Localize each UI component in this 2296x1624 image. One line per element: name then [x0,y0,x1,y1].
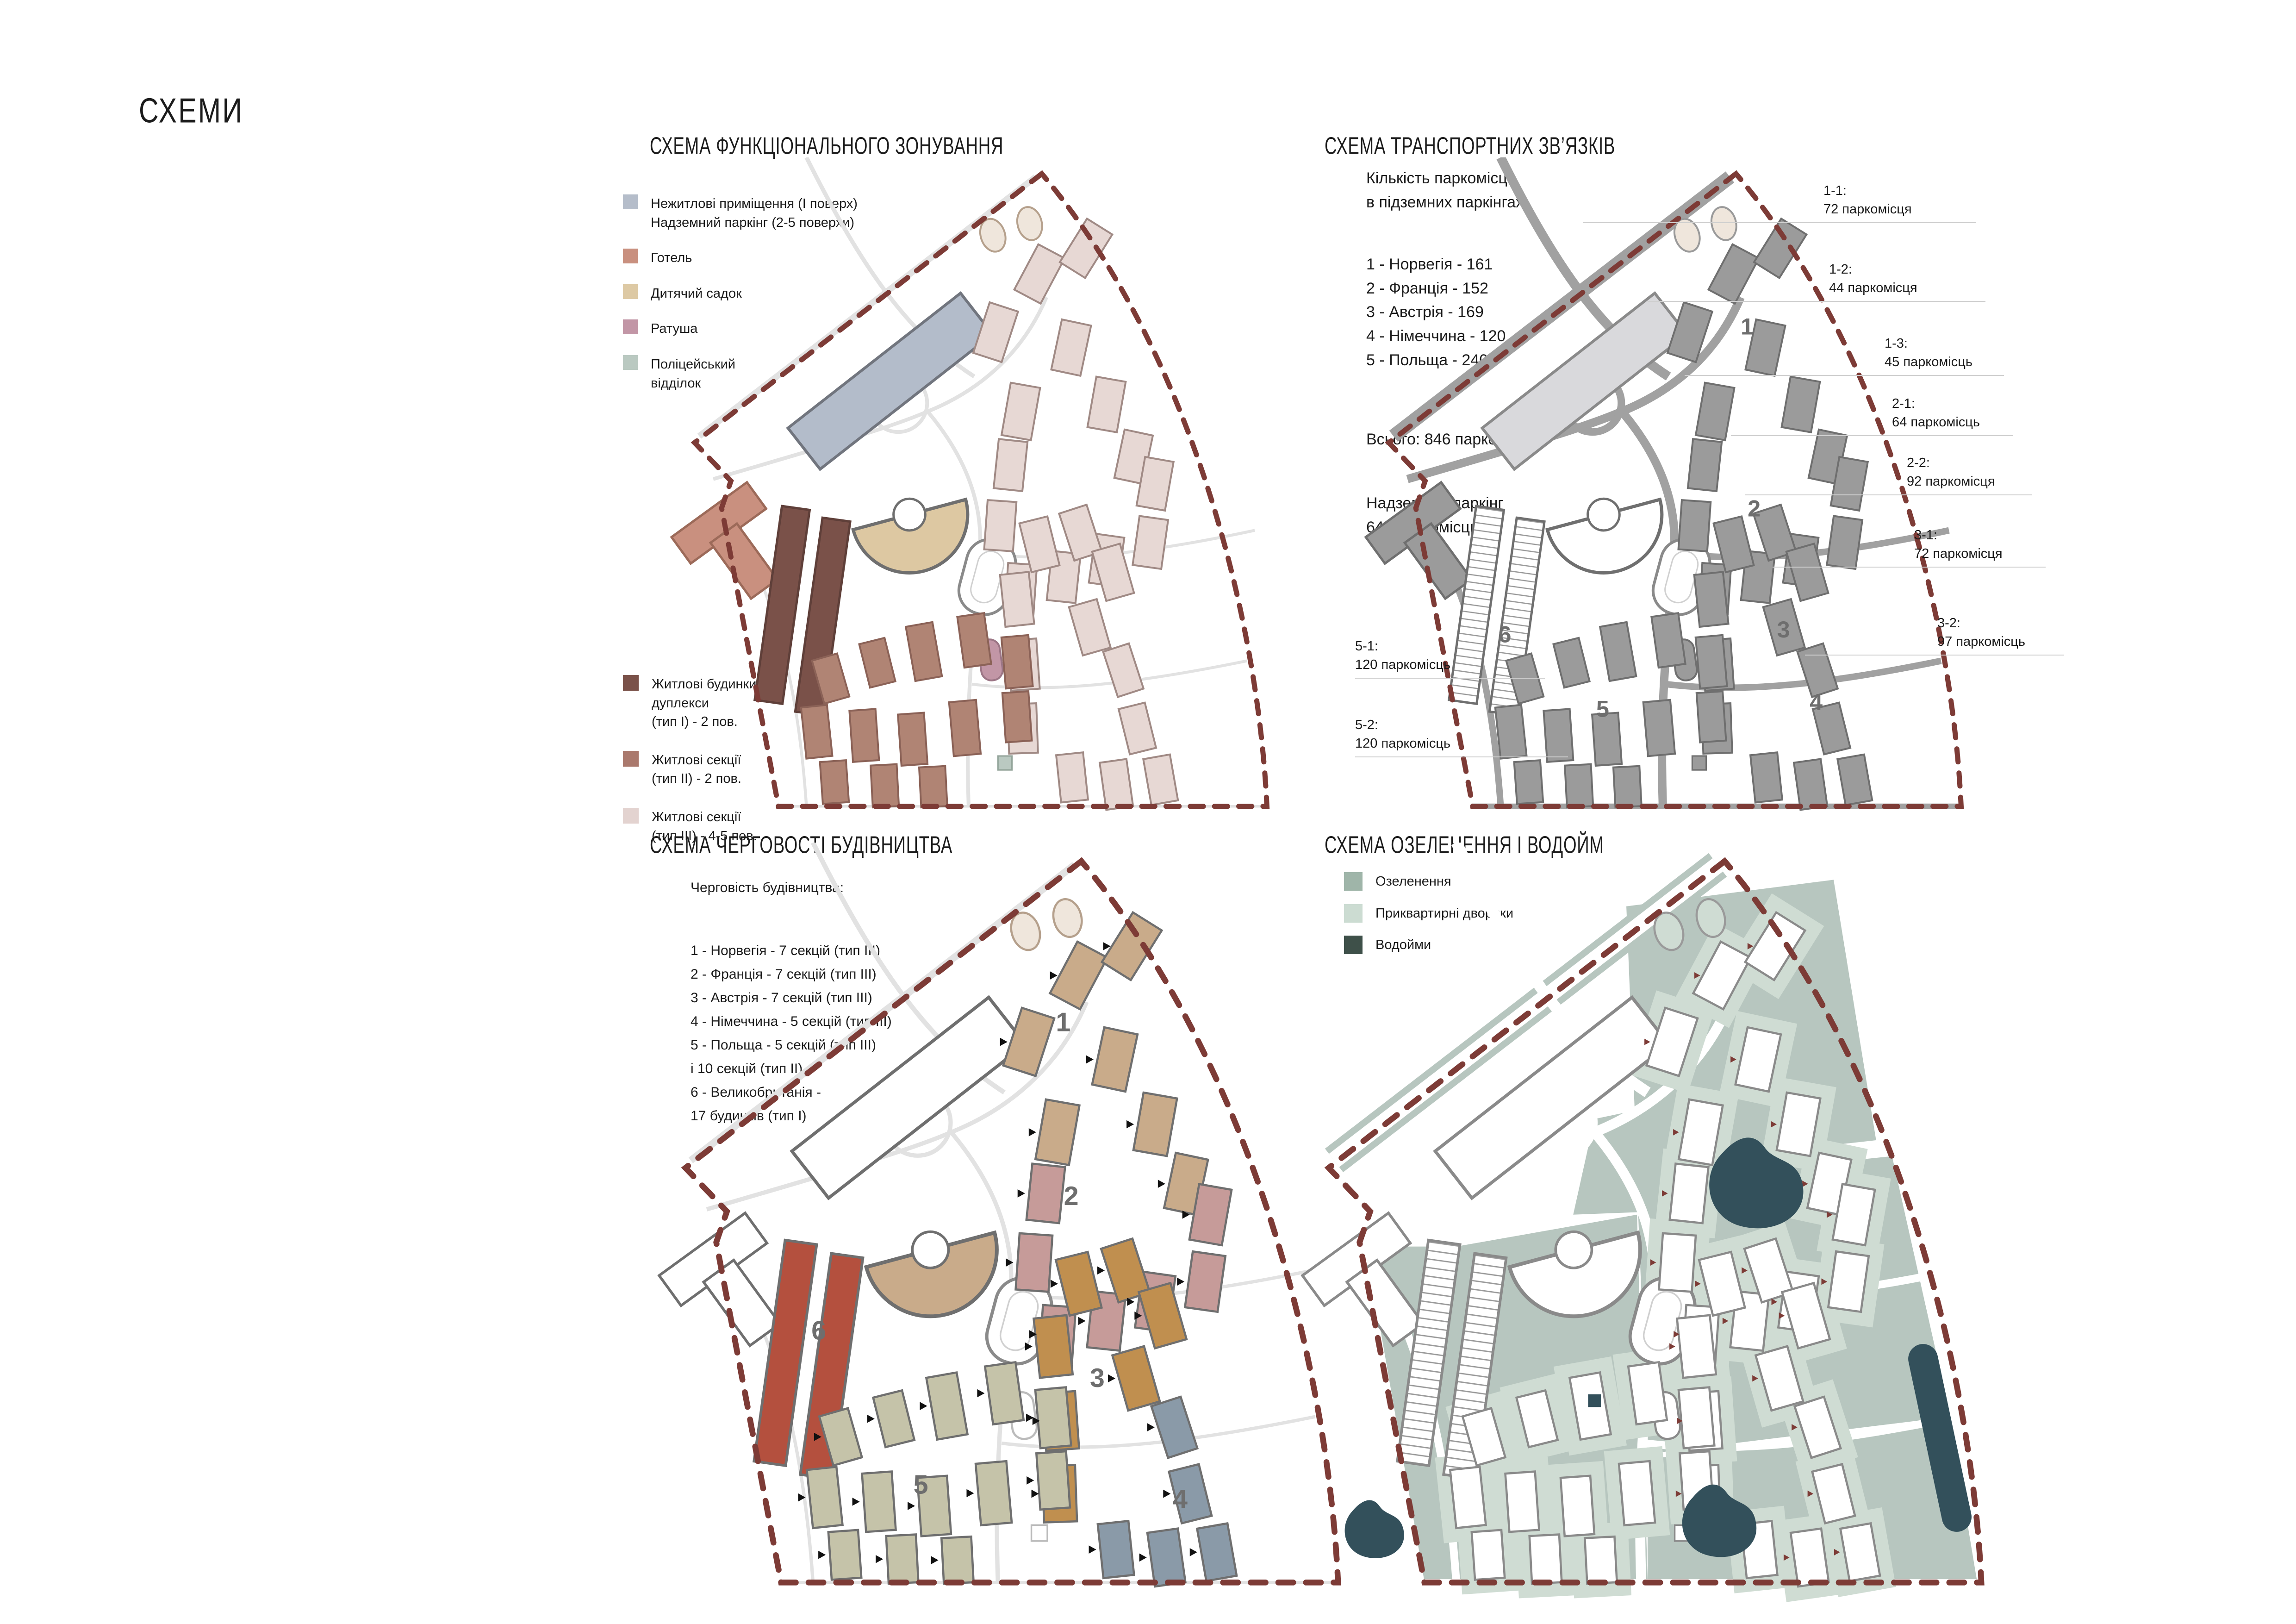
callout-leader-line [1648,301,1985,302]
building [1643,700,1675,756]
entrance-marker [1029,1128,1036,1137]
building [1016,1233,1053,1292]
building [1837,755,1872,805]
building [886,1535,919,1584]
building [1482,293,1687,469]
building [788,293,993,469]
entrance-marker [908,1502,915,1510]
building [1553,638,1589,687]
entrance-marker [1032,1490,1039,1498]
building [1098,1521,1134,1578]
entrance-marker [1050,971,1058,980]
building [1056,752,1088,802]
building [1450,1467,1486,1528]
building [1405,524,1472,599]
building [1147,1529,1185,1587]
building [710,524,778,599]
building [1103,643,1144,697]
zone-number: 5 [914,1470,928,1500]
entrance-marker [1158,1180,1165,1188]
building [1133,1093,1177,1156]
zone-number: 4 [1810,688,1823,715]
building [873,1390,915,1447]
callout-leader-line [1583,222,1976,223]
legend-swatch [623,194,638,209]
zone-number: 3 [1777,616,1790,643]
entrance-marker [818,1551,826,1559]
building [957,613,991,668]
building [703,1260,780,1346]
scheme2-title: СХЕМА ТРАНСПОРТНИХ ЗВ’ЯЗКІВ [1325,131,1615,160]
entrance-marker [852,1498,860,1506]
zone-number: 1 [1741,313,1754,340]
building [1495,705,1527,759]
parking-callout: 1-3: 45 паркомісць [1885,334,1972,371]
entrance-marker [1078,1317,1086,1325]
building [1032,1525,1047,1541]
building [1027,1164,1065,1223]
building [1185,1251,1225,1312]
building [1530,1535,1562,1584]
building [1659,1233,1696,1292]
building [1827,516,1862,569]
entrance-marker [1147,1423,1155,1431]
building [1112,1346,1160,1411]
entrance-marker [966,1489,974,1498]
building [1688,439,1722,491]
building [1613,766,1642,807]
building [919,766,947,807]
building [1628,1362,1667,1424]
entrance-marker [1051,1280,1058,1288]
parking-callout: 1-2: 44 паркомісця [1829,260,1917,297]
zone-number: 6 [1498,621,1511,647]
building [1754,219,1806,278]
tree-oval [1050,896,1086,940]
entrance-marker [867,1415,875,1423]
building [994,439,1027,491]
building [801,705,833,759]
legend-swatch [623,355,638,370]
zone-number: 5 [1596,695,1609,722]
building [898,713,927,766]
building [1100,759,1133,810]
building [1619,1461,1655,1525]
building [1679,1387,1714,1449]
building [807,1467,842,1528]
building [792,997,1025,1198]
scheme4-map [1291,843,2004,1603]
building [1679,500,1711,551]
building [984,500,1017,551]
entrance-marker [876,1555,883,1563]
parking-callout: 3-2: 97 паркомісць [1937,614,2025,651]
legend-swatch [623,751,639,767]
building [949,700,981,756]
building [1035,1387,1071,1449]
building [1709,244,1759,304]
zone-number: 2 [1064,1181,1079,1211]
tree-oval [1708,204,1740,243]
zone-number: 3 [1090,1363,1105,1393]
building [1002,383,1040,440]
building [1782,377,1820,432]
entrance-marker [1139,1554,1147,1562]
entrance-marker [1018,1189,1025,1198]
building [1002,691,1032,742]
building [1696,383,1734,440]
building [1828,1251,1868,1312]
entrance-marker [1126,1120,1134,1129]
building [1132,516,1168,569]
zone-number: 4 [1173,1485,1188,1514]
building [1050,942,1108,1009]
callout-leader-line [1773,567,2046,568]
page: СХЕМИ СХЕМА ФУНКЦІОНАЛЬНОГО ЗОНУВАННЯ СХ… [0,0,2296,1624]
building [1143,755,1178,805]
entrance-marker [931,1556,939,1564]
building [906,622,942,681]
building [1750,752,1782,802]
scheme3-map: 123456 [648,843,1361,1603]
building [1670,1164,1709,1223]
building [1692,756,1706,770]
building [998,756,1012,770]
kindergarten-building [1543,484,1675,586]
building [1035,1099,1079,1165]
building [1119,703,1156,755]
legend-swatch [623,249,638,263]
entrance-marker [1027,1476,1034,1485]
entrance-marker [977,1389,984,1398]
building [1565,764,1593,807]
entrance-marker [1097,1267,1105,1275]
building [1088,377,1126,432]
page-title: СХЕМИ [139,91,243,131]
site-boundary [685,861,1338,1582]
building [1651,613,1685,668]
zone-number: 1 [1056,1008,1070,1037]
building [1034,1315,1073,1378]
building [1585,1537,1617,1584]
building [926,1373,967,1440]
building [1060,219,1112,278]
building [828,1530,861,1580]
callout-leader-line [1355,756,1568,757]
building [1696,635,1727,688]
entrance-marker [1190,1548,1197,1556]
zone-number: 6 [811,1316,826,1346]
building [849,709,879,762]
site-boundary [695,174,1267,806]
kindergarten-building [849,484,981,586]
building [1014,244,1065,304]
building [1051,319,1091,376]
building [941,1537,973,1584]
building [1002,635,1033,688]
entrance-marker [1108,1374,1115,1383]
building [1697,691,1726,742]
small-pond [1588,1394,1601,1407]
parking-callout: 2-1: 64 паркомісць [1892,394,1980,431]
kindergarten-building [862,1215,1012,1331]
entrance-marker [1086,1056,1094,1064]
callout-leader-line [1745,494,2032,495]
building [1791,1529,1829,1587]
building [1092,1027,1138,1092]
building [859,638,895,687]
callout-leader-line [1731,435,2013,436]
building [976,1461,1012,1525]
parking-callout: 5-2: 120 паркомісць [1355,716,1450,753]
zone-number: 2 [1748,495,1761,521]
building [1197,1524,1237,1581]
parking-callout: 3-1: 72 паркомісця [1914,526,2003,563]
building [1561,1476,1594,1536]
parking-callout: 2-2: 92 паркомісця [1907,454,1995,491]
building [1069,599,1111,656]
building [1472,1530,1505,1580]
legend-swatch [623,284,638,299]
legend-swatch [623,808,639,824]
entrance-marker [1177,1278,1184,1286]
parking-callout: 5-1: 120 паркомісць [1355,637,1450,674]
building [985,1362,1024,1424]
entrance-marker [1163,1490,1170,1498]
scheme1-title: СХЕМА ФУНКЦІОНАЛЬНОГО ЗОНУВАННЯ [650,131,1003,160]
pond [1345,1500,1404,1558]
building [820,760,849,804]
building [1151,1397,1198,1458]
callout-leader-line [1355,678,1545,679]
building [1543,709,1573,762]
building [1506,1472,1539,1532]
scheme1-map [662,157,1287,824]
entrance-marker [1089,1545,1096,1554]
legend-swatch [623,319,638,334]
building [862,1472,896,1532]
parking-callout: 1-1: 72 паркомісця [1823,181,1912,219]
building [1102,912,1162,980]
legend-swatch [623,675,639,691]
tree-oval [1014,204,1045,243]
entrance-marker [920,1402,927,1410]
building [1600,622,1636,681]
building [1036,1451,1070,1510]
callout-leader-line [1805,655,2064,656]
callout-leader-line [1685,375,2004,376]
building [1677,1315,1716,1378]
building [1514,760,1543,804]
building [1000,572,1034,627]
building [1794,759,1827,810]
building [871,764,899,807]
building [1694,572,1729,627]
